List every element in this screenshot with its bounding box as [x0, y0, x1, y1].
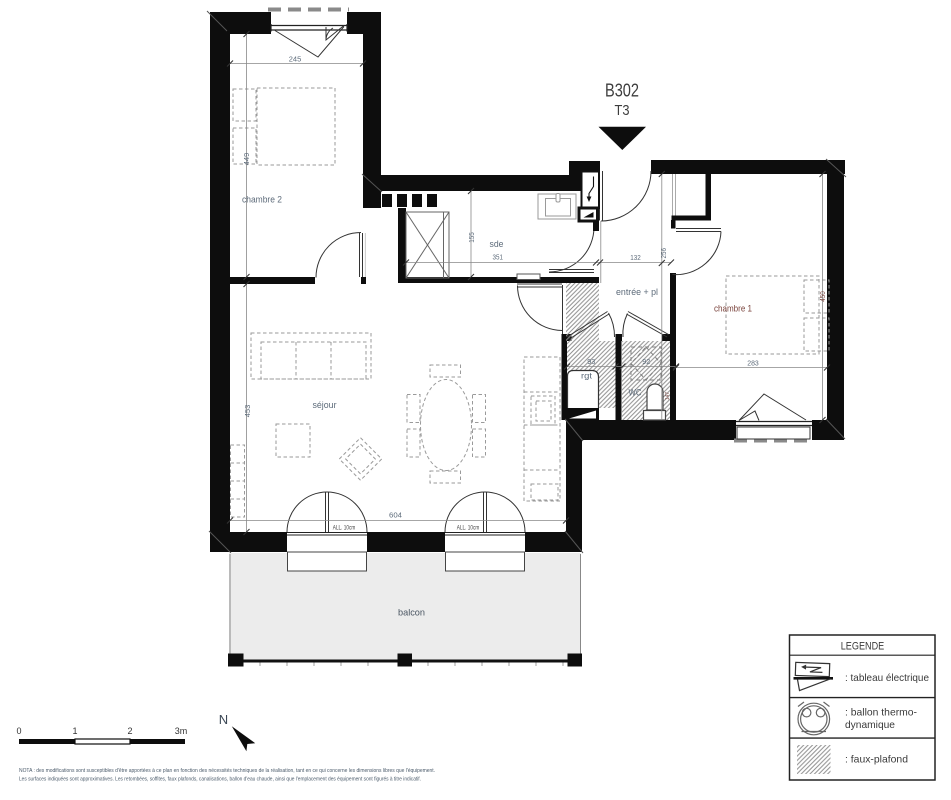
svg-text:dynamique: dynamique [845, 719, 895, 731]
svg-text:155: 155 [467, 232, 476, 243]
svg-text:147: 147 [665, 392, 671, 400]
svg-text:séjour: séjour [313, 400, 337, 411]
svg-text:351: 351 [493, 253, 504, 262]
svg-text:453: 453 [243, 405, 252, 418]
svg-text:92: 92 [642, 357, 650, 366]
svg-text:sde: sde [490, 239, 504, 250]
svg-text:LEGENDE: LEGENDE [841, 641, 885, 653]
svg-text:WC: WC [629, 388, 642, 398]
svg-text:T3: T3 [615, 102, 630, 119]
svg-text:93: 93 [587, 357, 595, 366]
svg-text:0: 0 [16, 726, 21, 736]
svg-text:: faux-plafond: : faux-plafond [845, 754, 908, 766]
svg-text:B302: B302 [605, 80, 639, 101]
svg-text:: ballon thermo-: : ballon thermo- [845, 707, 917, 719]
svg-text:Les surfaces indiquées sont ap: Les surfaces indiquées sont approximativ… [19, 777, 421, 783]
svg-text:chambre 2: chambre 2 [242, 195, 282, 206]
svg-text:: tableau électrique: : tableau électrique [845, 672, 929, 684]
svg-text:450: 450 [818, 291, 827, 302]
svg-text:entrée + pl: entrée + pl [616, 287, 658, 298]
svg-text:N: N [219, 712, 228, 727]
svg-text:449: 449 [242, 153, 251, 166]
svg-text:2: 2 [127, 726, 132, 736]
svg-text:132: 132 [630, 253, 641, 262]
svg-text:604: 604 [389, 511, 402, 520]
svg-text:283: 283 [747, 359, 759, 368]
svg-text:256: 256 [659, 248, 668, 259]
svg-text:ALL. 10cm: ALL. 10cm [457, 526, 480, 532]
svg-text:balcon: balcon [398, 608, 425, 619]
svg-text:3m: 3m [175, 726, 188, 736]
svg-text:ALL. 10cm: ALL. 10cm [333, 526, 356, 532]
svg-text:1: 1 [72, 726, 77, 736]
svg-text:NOTA : des modifications sont: NOTA : des modifications sont susceptibl… [19, 768, 435, 774]
svg-text:chambre 1: chambre 1 [714, 304, 752, 315]
svg-text:rgt: rgt [581, 371, 593, 381]
svg-text:245: 245 [289, 55, 302, 64]
